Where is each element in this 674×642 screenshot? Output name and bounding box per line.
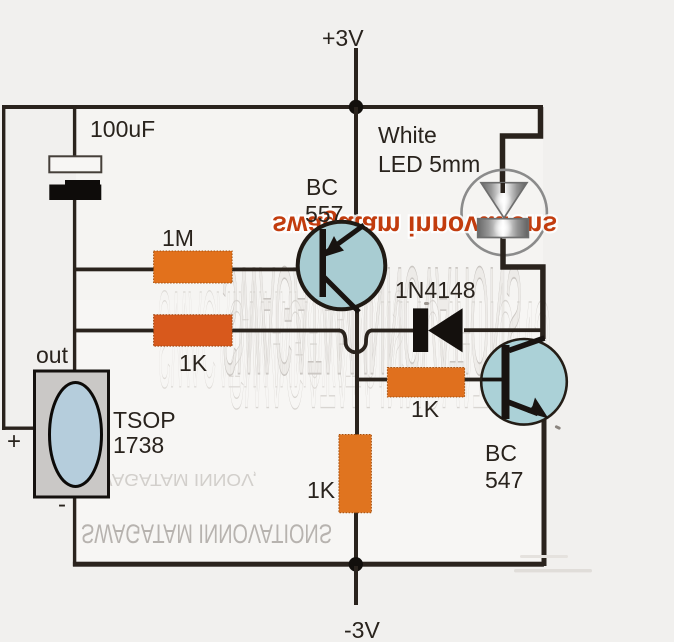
svg-text:-3V: -3V xyxy=(344,617,380,642)
svg-text:TSOP: TSOP xyxy=(113,407,176,433)
svg-text:White: White xyxy=(378,122,437,148)
svg-text:1M: 1M xyxy=(162,225,194,251)
svg-text:1K: 1K xyxy=(179,350,208,376)
svg-text:+: + xyxy=(7,428,21,455)
svg-text:1738: 1738 xyxy=(113,432,164,458)
svg-text:out: out xyxy=(36,342,69,368)
svg-text:100uF: 100uF xyxy=(90,116,155,142)
svg-text:-: - xyxy=(58,491,66,518)
svg-text:1N4148: 1N4148 xyxy=(395,277,476,303)
svg-text:LED 5mm: LED 5mm xyxy=(378,151,480,177)
svg-text:BC: BC xyxy=(306,174,338,200)
svg-text:557: 557 xyxy=(305,201,343,227)
svg-text:SWAGATAM INNOVATIONS: SWAGATAM INNOVATIONS xyxy=(81,518,332,548)
svg-text:547: 547 xyxy=(485,467,523,493)
svg-text:1K: 1K xyxy=(411,396,440,422)
svg-text:+3V: +3V xyxy=(322,25,364,51)
svg-text:1K: 1K xyxy=(307,477,336,503)
svg-text:BC: BC xyxy=(485,440,517,466)
